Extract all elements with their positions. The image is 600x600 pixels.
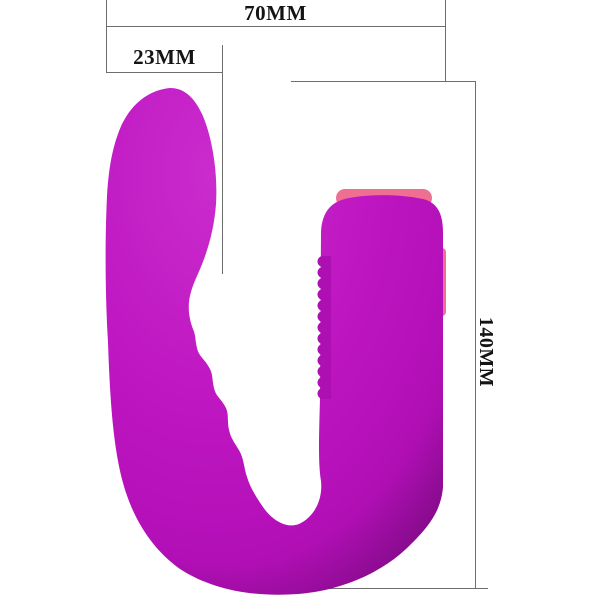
dimension-label-width: 70MM: [106, 1, 445, 26]
dimension-label-head-width: 23MM: [106, 45, 223, 70]
body-shading: [106, 88, 443, 595]
dimension-label-height: 140MM: [475, 296, 497, 408]
figure-region: 70MM 23MM 140MM: [0, 0, 600, 600]
product-illustration: [0, 0, 600, 600]
